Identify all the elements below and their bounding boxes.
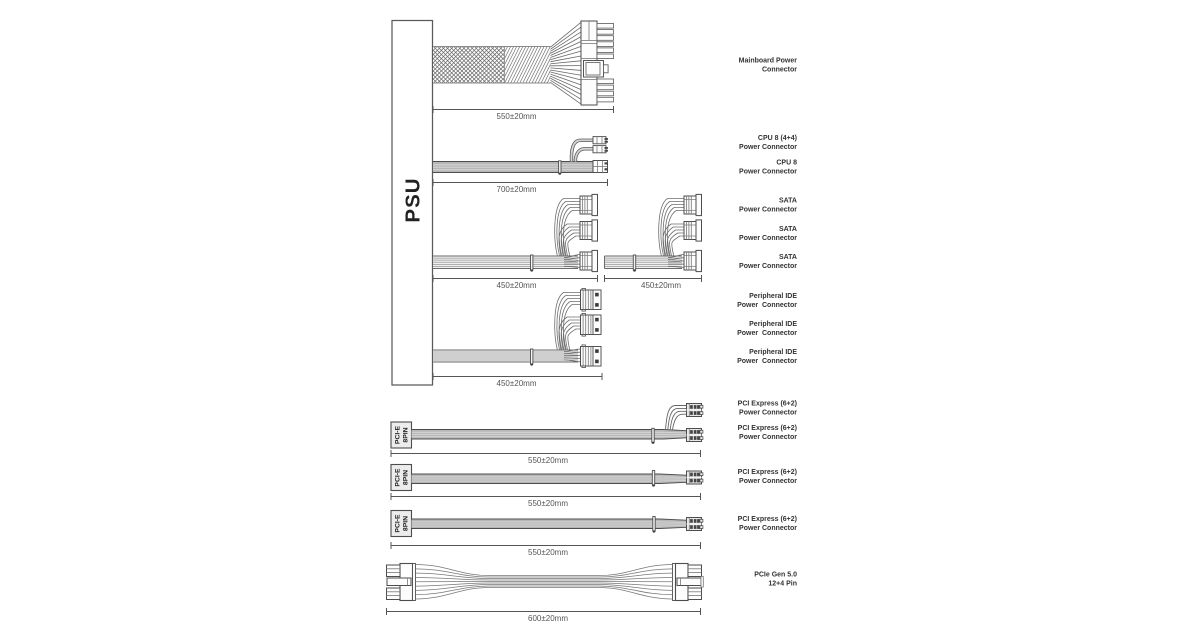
svg-text:PCI-E: PCI-E (395, 514, 402, 533)
svg-text:450±20mm: 450±20mm (641, 281, 681, 290)
svg-text:700±20mm: 700±20mm (497, 185, 537, 194)
svg-text:8PIN: 8PIN (403, 516, 410, 531)
svg-text:8PIN: 8PIN (403, 427, 410, 442)
svg-text:550±20mm: 550±20mm (497, 112, 537, 121)
svg-text:8PIN: 8PIN (403, 470, 410, 485)
svg-text:550±20mm: 550±20mm (528, 456, 568, 465)
svg-text:550±20mm: 550±20mm (528, 499, 568, 508)
svg-text:PCI-E: PCI-E (395, 468, 402, 487)
svg-text:450±20mm: 450±20mm (497, 281, 537, 290)
svg-text:550±20mm: 550±20mm (528, 548, 568, 557)
svg-text:450±20mm: 450±20mm (497, 379, 537, 388)
svg-text:PSU: PSU (402, 177, 425, 222)
svg-text:PCI-E: PCI-E (395, 425, 402, 444)
svg-text:600±20mm: 600±20mm (528, 614, 568, 623)
